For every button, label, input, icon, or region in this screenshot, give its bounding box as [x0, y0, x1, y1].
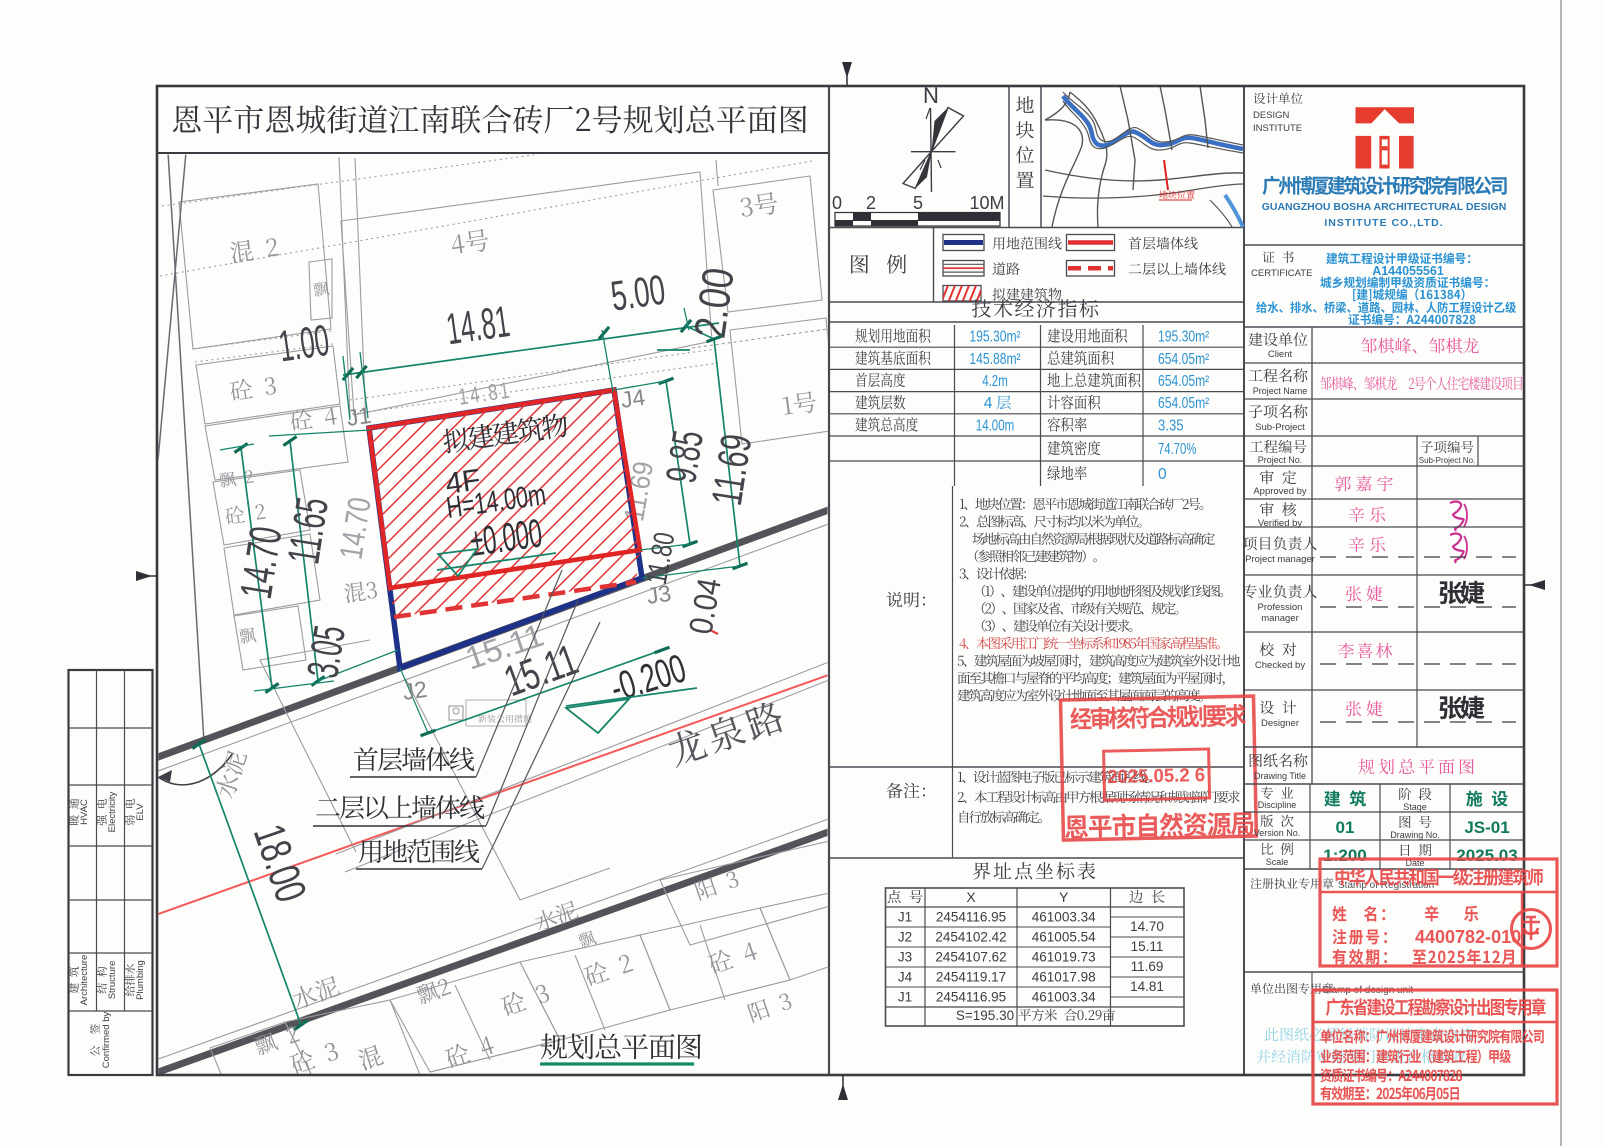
svg-text:2025.05.2 6: 2025.05.2 6 [1107, 765, 1205, 788]
svg-text:14.70: 14.70 [1130, 919, 1164, 934]
svg-text:4400782-010: 4400782-010 [1415, 927, 1521, 947]
svg-text:15.11: 15.11 [1131, 939, 1164, 954]
svg-text:X: X [966, 889, 976, 905]
svg-text:01: 01 [1336, 818, 1355, 837]
svg-text:3.35: 3.35 [1158, 417, 1184, 434]
svg-text:3.05: 3.05 [298, 622, 355, 681]
svg-text:manager: manager [1261, 613, 1299, 624]
svg-text:Sub-Project No.: Sub-Project No. [1419, 456, 1475, 465]
svg-text:145.88m²: 145.88m² [969, 351, 1020, 368]
svg-text:Architecture: Architecture [79, 955, 90, 1006]
svg-text:654.05m²: 654.05m² [1158, 351, 1209, 368]
svg-text:2454116.95: 2454116.95 [936, 990, 1006, 1005]
svg-text:195.30m²: 195.30m² [1158, 329, 1209, 346]
svg-text:Drawing Title: Drawing Title [1254, 771, 1306, 781]
svg-text:10M: 10M [969, 193, 1004, 213]
svg-text:461005.54: 461005.54 [1032, 930, 1096, 945]
svg-text:GUANGZHOU BOSHA ARCHITECTURAL: GUANGZHOU BOSHA ARCHITECTURAL DESIGN [1262, 201, 1507, 213]
svg-text:461003.34: 461003.34 [1032, 910, 1096, 925]
svg-text:ELV: ELV [135, 803, 146, 821]
svg-text:1:200: 1:200 [1323, 846, 1366, 865]
svg-text:Y: Y [1059, 889, 1069, 905]
svg-text:Plumbing: Plumbing [135, 960, 146, 1000]
svg-text:CERTIFICATE: CERTIFICATE [1251, 268, 1312, 279]
svg-text:9.85: 9.85 [657, 427, 713, 486]
svg-text:461017.98: 461017.98 [1032, 970, 1096, 985]
svg-text:Discipline: Discipline [1258, 800, 1297, 810]
svg-text:J1: J1 [898, 990, 912, 1005]
svg-text:0: 0 [832, 193, 842, 213]
svg-text:Version No.: Version No. [1254, 828, 1301, 838]
svg-text:Structure: Structure [107, 961, 118, 1000]
svg-text:5.00: 5.00 [608, 266, 668, 320]
svg-text:J1: J1 [898, 910, 912, 925]
svg-text:2454116.95: 2454116.95 [936, 910, 1006, 925]
svg-text:Designer: Designer [1261, 718, 1299, 729]
svg-text:J2: J2 [898, 930, 912, 945]
svg-text:Approved by: Approved by [1253, 486, 1307, 497]
svg-text:11.69: 11.69 [1131, 959, 1164, 974]
svg-text:J3: J3 [898, 950, 912, 965]
svg-text:1.00: 1.00 [276, 316, 332, 371]
svg-text:2454107.62: 2454107.62 [935, 950, 1006, 965]
svg-text:654.05m²: 654.05m² [1158, 373, 1209, 390]
svg-text:Stage: Stage [1403, 802, 1427, 812]
svg-text:654.05m²: 654.05m² [1158, 395, 1209, 412]
svg-text:A144055561: A144055561 [1372, 264, 1444, 278]
svg-text:HVAC: HVAC [79, 799, 90, 825]
svg-text:Profession: Profession [1258, 602, 1303, 613]
svg-text:Project manager: Project manager [1245, 554, 1315, 565]
svg-text:J4: J4 [619, 384, 647, 413]
svg-text:Checked by: Checked by [1255, 660, 1305, 671]
svg-text:Drawing No.: Drawing No. [1390, 830, 1440, 840]
svg-text:Confirmed by: Confirmed by [101, 1012, 112, 1069]
svg-text:INSTITUTE: INSTITUTE [1253, 123, 1302, 134]
svg-text:4.2m: 4.2m [982, 373, 1008, 390]
svg-text:J2: J2 [401, 676, 429, 705]
svg-text:2454102.42: 2454102.42 [935, 930, 1006, 945]
svg-text:Scale: Scale [1266, 857, 1289, 867]
svg-text:Sub-Project: Sub-Project [1255, 422, 1305, 433]
svg-text:2454119.17: 2454119.17 [936, 970, 1006, 985]
svg-text:J4: J4 [898, 970, 913, 985]
svg-text:14.81: 14.81 [1130, 979, 1164, 994]
svg-text:461019.73: 461019.73 [1032, 950, 1096, 965]
svg-text:Project No.: Project No. [1258, 455, 1303, 465]
svg-text:J1: J1 [345, 402, 373, 431]
svg-text:DESIGN: DESIGN [1253, 110, 1290, 121]
svg-text:INSTITUTE CO.,LTD.: INSTITUTE CO.,LTD. [1324, 217, 1443, 229]
svg-text:5: 5 [913, 193, 923, 213]
svg-text:14.81: 14.81 [443, 297, 512, 354]
svg-text:74.70%: 74.70% [1158, 441, 1197, 458]
svg-text:Client: Client [1268, 349, 1293, 360]
svg-text:195.30m²: 195.30m² [969, 329, 1020, 346]
svg-text:4: 4 [984, 395, 993, 412]
svg-text:461003.34: 461003.34 [1032, 990, 1096, 1005]
svg-text:14.00m: 14.00m [976, 417, 1014, 434]
svg-text:J3: J3 [645, 580, 673, 609]
svg-text:2: 2 [866, 193, 876, 213]
svg-text:S=195.30: S=195.30 [956, 1008, 1014, 1023]
svg-text:Electricity: Electricity [107, 791, 118, 832]
svg-text:JS-01: JS-01 [1464, 818, 1509, 837]
svg-text:0: 0 [1158, 466, 1167, 483]
svg-text:2.00: 2.00 [686, 265, 744, 341]
svg-text:2025.03: 2025.03 [1456, 846, 1517, 865]
svg-text:Project Name: Project Name [1253, 386, 1308, 396]
